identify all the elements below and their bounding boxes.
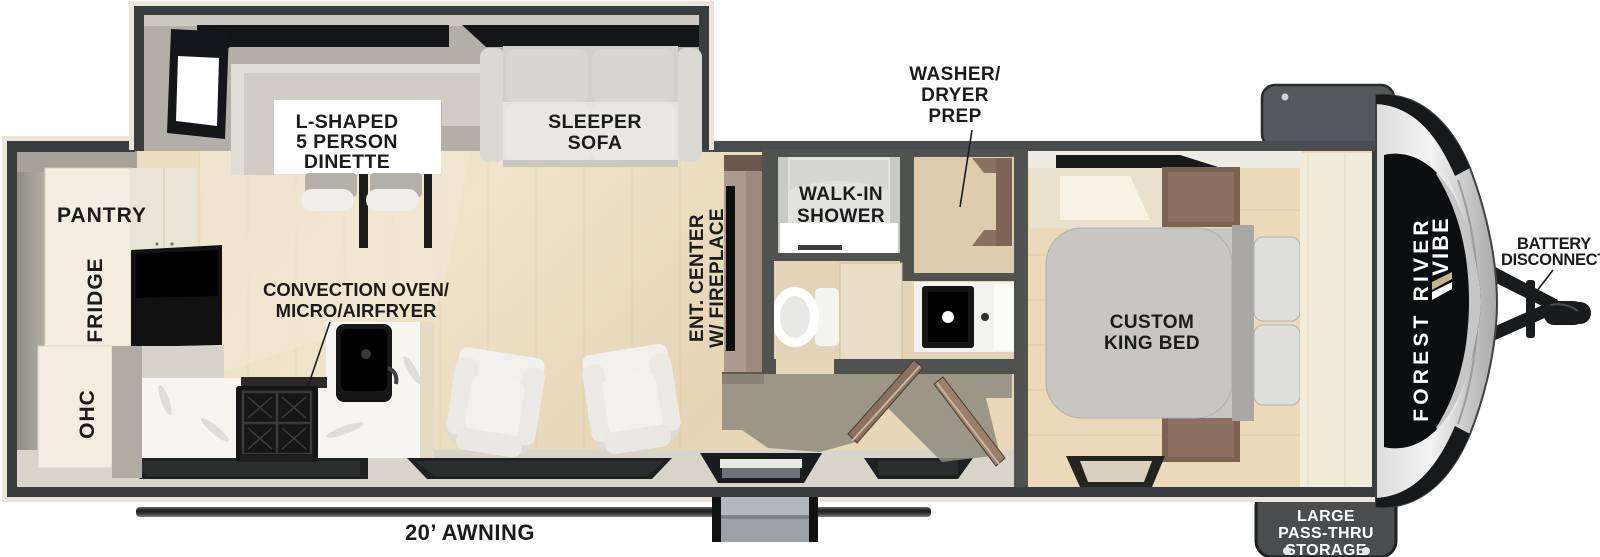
svg-text:PREP: PREP	[928, 106, 981, 127]
svg-text:SLEEPER: SLEEPER	[548, 111, 642, 133]
svg-text:FRIDGE: FRIDGE	[84, 257, 107, 342]
svg-text:W/ FIREPLACE: W/ FIREPLACE	[707, 208, 728, 348]
svg-text:WASHER/: WASHER/	[909, 64, 1001, 85]
svg-text:PASS-THRU: PASS-THRU	[1278, 525, 1374, 542]
svg-text:20’ AWNING: 20’ AWNING	[405, 520, 535, 545]
svg-text:PANTRY: PANTRY	[57, 204, 147, 227]
svg-text:CUSTOM: CUSTOM	[1110, 312, 1194, 333]
svg-text:ENT. CENTER: ENT. CENTER	[687, 214, 708, 342]
svg-text:CONVECTION OVEN/: CONVECTION OVEN/	[263, 279, 449, 300]
svg-text:WALK-IN: WALK-IN	[799, 184, 883, 205]
svg-text:SOFA: SOFA	[568, 132, 623, 154]
svg-text:KING BED: KING BED	[1104, 333, 1200, 354]
svg-text:VIBE: VIBE	[1428, 216, 1453, 275]
svg-text:5 PERSON: 5 PERSON	[296, 131, 398, 153]
svg-text:STORAGE: STORAGE	[1285, 542, 1367, 557]
svg-text:MICRO/AIRFRYER: MICRO/AIRFRYER	[276, 300, 437, 321]
svg-text:DINETTE: DINETTE	[304, 151, 390, 173]
svg-text:DRYER: DRYER	[921, 85, 989, 106]
svg-text:SHOWER: SHOWER	[797, 206, 885, 227]
svg-text:DISCONNECT: DISCONNECT	[1501, 251, 1600, 269]
svg-text:OHC: OHC	[76, 389, 99, 439]
svg-text:LARGE: LARGE	[1297, 508, 1355, 525]
svg-text:L-SHAPED: L-SHAPED	[296, 111, 399, 133]
